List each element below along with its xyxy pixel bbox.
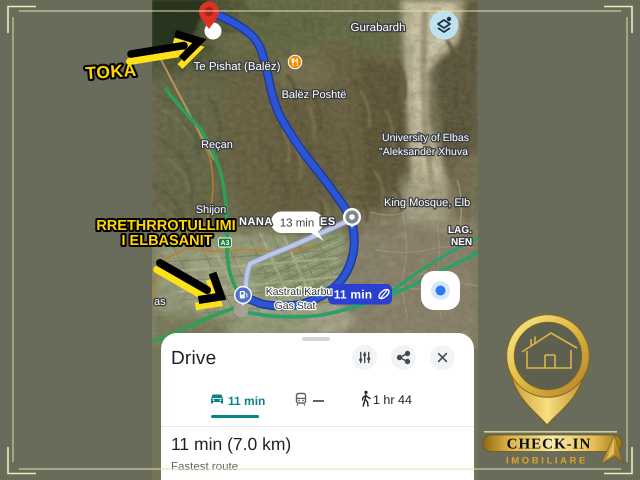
svg-text:RRETHRROTULLIMI: RRETHRROTULLIMI <box>96 218 235 234</box>
svg-text:I ELBASANIT: I ELBASANIT <box>121 233 212 249</box>
svg-text:CHECK-IN: CHECK-IN <box>507 437 592 453</box>
svg-text:IMOBILIARE: IMOBILIARE <box>506 456 588 467</box>
